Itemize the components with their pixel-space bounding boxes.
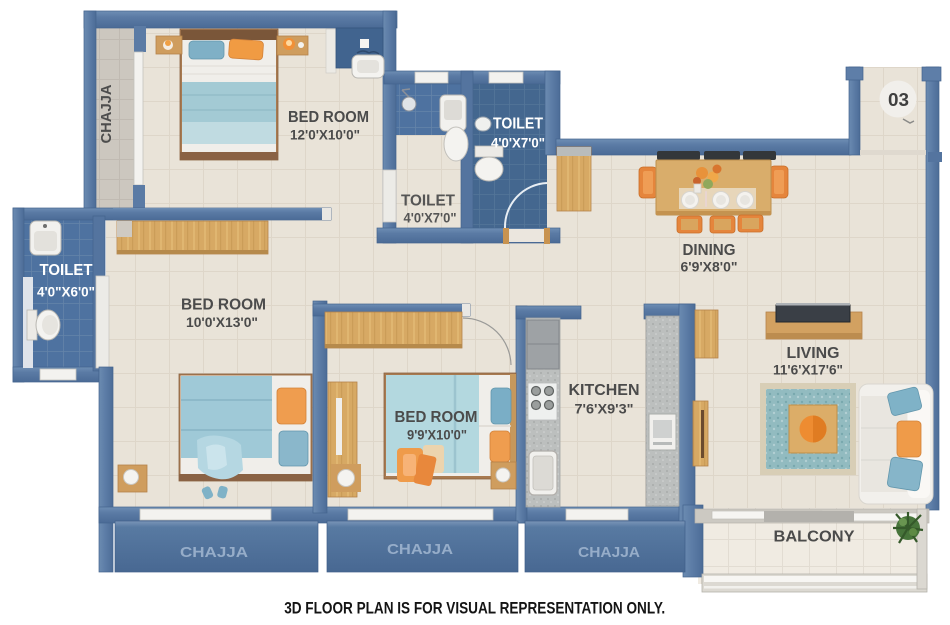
svg-text:LIVING: LIVING bbox=[787, 345, 840, 362]
svg-text:TOILET: TOILET bbox=[401, 193, 456, 210]
svg-text:9'9'X10'0": 9'9'X10'0" bbox=[407, 428, 467, 443]
svg-text:CHAJJA: CHAJJA bbox=[98, 84, 115, 143]
svg-text:CHAJJA: CHAJJA bbox=[578, 544, 640, 561]
svg-text:BED ROOM: BED ROOM bbox=[288, 109, 369, 126]
svg-text:BED ROOM: BED ROOM bbox=[395, 409, 478, 426]
svg-text:TOILET: TOILET bbox=[40, 262, 94, 279]
svg-text:4'0'X7'0": 4'0'X7'0" bbox=[491, 136, 545, 151]
svg-text:BALCONY: BALCONY bbox=[774, 529, 855, 546]
svg-text:4'0'X7'0": 4'0'X7'0" bbox=[404, 211, 457, 226]
svg-text:TOILET: TOILET bbox=[493, 116, 543, 133]
svg-text:6'9'X8'0": 6'9'X8'0" bbox=[681, 260, 738, 275]
svg-text:DINING: DINING bbox=[683, 242, 736, 259]
svg-text:CHAJJA: CHAJJA bbox=[387, 541, 453, 558]
svg-text:10'0'X13'0": 10'0'X13'0" bbox=[186, 315, 258, 330]
svg-text:BED ROOM: BED ROOM bbox=[181, 297, 266, 314]
svg-text:7'6'X9'3": 7'6'X9'3" bbox=[575, 402, 634, 417]
svg-text:CHAJJA: CHAJJA bbox=[180, 544, 248, 561]
svg-text:KITCHEN: KITCHEN bbox=[569, 382, 640, 399]
svg-text:3D FLOOR PLAN IS FOR VISUAL RE: 3D FLOOR PLAN IS FOR VISUAL REPRESENTATI… bbox=[284, 599, 665, 618]
svg-text:03: 03 bbox=[888, 90, 909, 110]
svg-text:12'0'X10'0": 12'0'X10'0" bbox=[290, 128, 360, 143]
svg-text:11'6'X17'6": 11'6'X17'6" bbox=[773, 363, 843, 378]
svg-text:4'0"X6'0": 4'0"X6'0" bbox=[37, 285, 95, 300]
